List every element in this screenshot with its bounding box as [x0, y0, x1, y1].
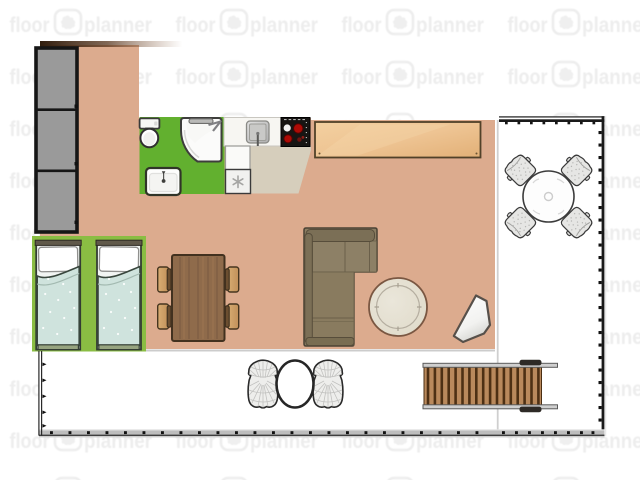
- svg-text:planner: planner: [250, 66, 318, 89]
- svg-text:floor: floor: [508, 66, 548, 89]
- svg-text:planner: planner: [250, 14, 318, 37]
- svg-text:floor: floor: [176, 66, 216, 89]
- svg-text:floor: floor: [10, 14, 50, 37]
- svg-text:floor: floor: [342, 66, 382, 89]
- svg-text:planner: planner: [416, 14, 484, 37]
- svg-text:planner: planner: [84, 14, 152, 37]
- svg-text:floor: floor: [508, 14, 548, 37]
- svg-text:floor: floor: [176, 14, 216, 37]
- svg-text:planner: planner: [582, 66, 640, 89]
- svg-text:floor: floor: [342, 14, 382, 37]
- svg-text:planner: planner: [582, 14, 640, 37]
- svg-text:planner: planner: [416, 66, 484, 89]
